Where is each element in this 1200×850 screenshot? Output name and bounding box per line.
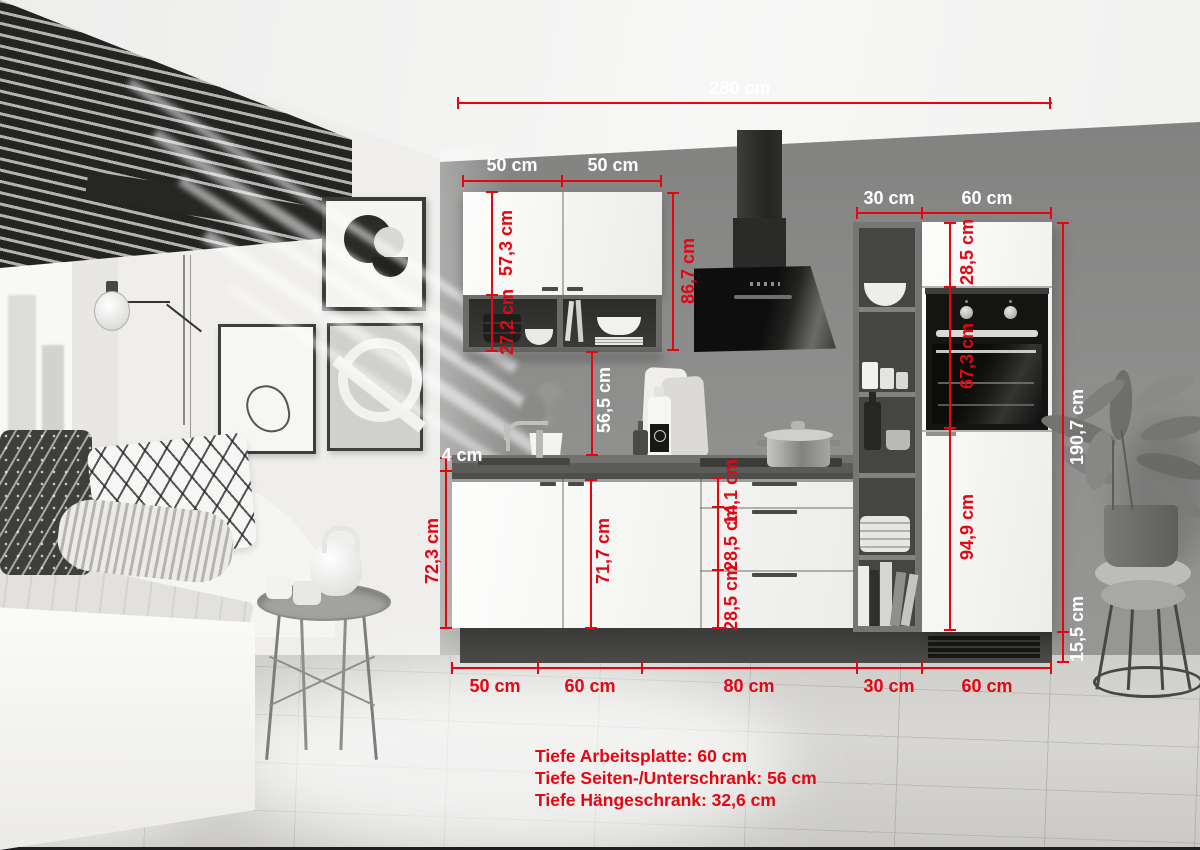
dim-tick [440,470,452,472]
dim-tick [1049,97,1051,109]
vent-grille [928,636,1040,658]
dim-line-total-width [458,102,1052,104]
dim-line-base-door [590,480,592,628]
stool-cushion [1101,580,1185,610]
dim-tick [921,662,923,674]
dim-tick [1050,662,1052,674]
dim-label-wall-cabinet-left: 50 cm [457,156,567,174]
oven-handle [936,330,1038,337]
dim-label-drawer-bottom: 28,5 cm [722,543,740,653]
dim-tick [1050,207,1052,219]
dim-label-tall-bottom-door: 94,9 cm [958,472,976,582]
potted-plant [1040,360,1200,530]
door-handle [568,482,584,486]
note-worktop-depth: Tiefe Arbeitsplatte: 60 cm [535,745,817,767]
dim-label-base-width-5: 60 cm [932,677,1042,695]
side-table [250,520,400,765]
cabinet-handle [542,287,558,291]
wall-lamp [90,265,210,355]
shelf-unit-cup [896,372,908,389]
shelf-unit-cup [862,362,878,389]
dim-line-wall-cabinet-total [672,193,674,350]
dim-label-base-cabinet-height: 72,3 cm [423,496,441,606]
dim-line-niche [591,352,593,455]
dim-label-base-width-3: 80 cm [694,677,804,695]
dim-label-tall-top-door: 28,5 cm [958,197,976,307]
bottle-label [650,424,669,452]
dim-tick [457,97,459,109]
shelf-unit-book [870,570,879,626]
dim-tick [462,175,464,187]
depth-notes: Tiefe Arbeitsplatte: 60 cm Tiefe Seiten-… [535,745,817,811]
cooking-pot [755,418,841,468]
door-handle [540,482,556,486]
stool [1085,550,1200,695]
dim-tick [641,662,643,674]
dim-tick [440,627,452,629]
dim-line-base-widths [452,667,1052,669]
plinth [460,628,855,663]
dim-tick [585,479,597,481]
dim-label-base-width-4: 30 cm [834,677,944,695]
bench-front [0,600,255,850]
drawer-handle [752,482,797,486]
dim-line-wall-cabinet-height [491,192,493,352]
dim-tick [944,222,956,224]
dim-tick [944,427,956,429]
dim-tick [561,175,563,187]
dim-label-wall-cabinet-total-height: 86,7 cm [679,216,697,326]
lamp-bulb [94,291,130,331]
dim-label-wall-cabinet-right: 50 cm [558,156,668,174]
dim-label-niche-height: 56,5 cm [595,345,613,455]
drawer-handle [752,573,797,577]
dim-label-worktop-thickness: 4 cm [407,446,517,464]
note-wall-cabinet-depth: Tiefe Hängeschrank: 32,6 cm [535,789,817,811]
dim-label-base-width-2: 60 cm [535,677,645,695]
table-leg [265,602,282,760]
dim-line-base-height [445,458,447,628]
table-leg [339,600,347,750]
pot-lid [764,429,833,441]
dim-label-oven-niche: 67,3 cm [958,301,976,411]
teacup [266,577,292,599]
note-base-cabinet-depth: Tiefe Seiten-/Unterschrank: 56 cm [535,767,817,789]
hood-chimney-lower [733,218,786,270]
dim-tick [667,349,679,351]
dim-tick [856,662,858,674]
oven-knob [1004,306,1017,319]
dim-label-shelf-unit-top: 30 cm [834,189,944,207]
hood-buttons [750,282,780,286]
dim-tick [921,207,923,219]
dim-tick [667,192,679,194]
dim-tick [944,629,956,631]
teapot-handle [322,526,360,553]
dim-tick [585,627,597,629]
cabinet-shadow [463,352,662,362]
hood-handle [734,295,792,299]
dim-tick [451,662,453,674]
shelf-unit-mug [886,430,910,450]
oil-bottle [633,430,648,458]
shelf-unit-plates [860,516,910,552]
dim-label-base-width-1: 50 cm [440,677,550,695]
dim-label-tall-unit-total-height: 190,7 cm [1068,372,1086,482]
cabinet-handle [567,287,583,291]
dim-line-tall-units-top [857,212,1052,214]
table-leg [361,602,378,760]
dim-line-total-height [1062,223,1064,663]
hood-chimney [737,130,782,220]
door-handle-groove [926,432,956,436]
dim-tick [1057,222,1069,224]
dim-tick [856,207,858,219]
dim-label-open-shelf-height: 27,2 cm [498,267,516,377]
lamp-arm [166,304,202,333]
dim-tick [944,286,956,288]
shelf-unit-book [858,566,869,626]
base-cabinets [452,479,858,628]
dim-label-base-door-height: 71,7 cm [594,496,612,606]
dim-line-drawers [717,478,719,628]
oven [926,294,1048,430]
bottle [648,396,671,458]
pot-lid-knob [791,421,805,430]
dim-label-plinth-height: 15,5 cm [1068,574,1086,684]
dim-label-total-width: 280 cm [685,79,795,97]
shelf-unit-bottle [864,402,881,450]
dim-tick [537,662,539,674]
dim-label-tall-cabinet-top: 60 cm [932,189,1042,207]
shelf-unit-cup [880,368,894,389]
kitchen-dimension-diagram: 280 cm 50 cm 50 cm 30 cm 60 cm 57,3 cm 2… [0,0,1200,850]
shelf-plates [595,337,643,345]
stool-base-ring [1093,666,1200,698]
dim-tick [660,175,662,187]
drawer-handle [752,510,797,514]
